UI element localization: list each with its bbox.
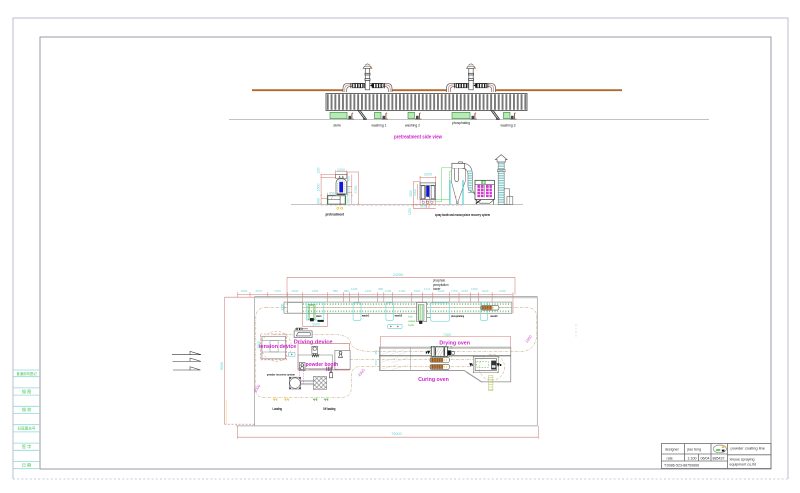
svg-text:06/04: 06/04 — [701, 456, 710, 460]
svg-text:wash2: wash2 — [394, 314, 403, 318]
svg-text:washing 1: washing 1 — [372, 123, 387, 127]
svg-text:200: 200 — [347, 198, 351, 204]
svg-text:skim: skim — [333, 123, 341, 127]
svg-text:1700: 1700 — [385, 289, 392, 293]
svg-text:3000: 3000 — [424, 173, 432, 177]
svg-text:980: 980 — [344, 289, 349, 293]
svg-text:2226: 2226 — [499, 289, 506, 293]
svg-text:2226: 2226 — [482, 289, 489, 293]
svg-text:描 图: 描 图 — [22, 388, 32, 395]
svg-text:1500: 1500 — [471, 287, 478, 291]
svg-text:pretreatment: pretreatment — [326, 212, 345, 216]
svg-text:equipment co,ltd: equipment co,ltd — [730, 462, 756, 466]
svg-text:1500: 1500 — [414, 289, 421, 293]
svg-text:200: 200 — [317, 168, 321, 174]
svg-text:phosphating: phosphating — [451, 314, 464, 318]
svg-text:powder recovery system: powder recovery system — [267, 372, 295, 376]
svg-text:tank: tank — [408, 323, 414, 327]
svg-text:3000: 3000 — [312, 322, 320, 326]
svg-text:1750: 1750 — [451, 289, 458, 293]
svg-text:xinyue spraying: xinyue spraying — [730, 458, 755, 462]
svg-text:powder booth: powder booth — [306, 362, 339, 368]
svg-text:skim: skim — [316, 314, 322, 318]
svg-text:描 校: 描 校 — [22, 406, 32, 413]
svg-text:1:100: 1:100 — [688, 456, 697, 460]
svg-text:1430: 1430 — [399, 289, 406, 293]
svg-text:wash1: wash1 — [361, 314, 370, 318]
svg-text:2570: 2570 — [255, 289, 262, 293]
svg-text:Curing oven: Curing oven — [418, 377, 449, 383]
svg-text:1445: 1445 — [351, 287, 358, 291]
svg-text:3500: 3500 — [257, 341, 261, 348]
svg-text:1500: 1500 — [241, 289, 248, 293]
svg-text:600: 600 — [420, 205, 426, 209]
svg-text:Drying oven: Drying oven — [439, 341, 470, 347]
svg-text:washing 3: washing 3 — [501, 123, 516, 127]
svg-text:普通用特登记: 普通用特登记 — [16, 371, 37, 376]
svg-text:Loading: Loading — [273, 407, 283, 411]
svg-text:5000: 5000 — [220, 362, 224, 370]
svg-text:800: 800 — [347, 176, 351, 182]
svg-text:rate: rate — [667, 456, 673, 460]
svg-text:880: 880 — [378, 287, 383, 291]
svg-text:1450: 1450 — [312, 289, 319, 293]
svg-text:tower: tower — [433, 287, 441, 291]
svg-text:1250: 1250 — [408, 208, 412, 215]
svg-text:wash3: wash3 — [490, 314, 498, 318]
svg-text:7300: 7300 — [443, 333, 451, 337]
svg-text:spray booth and monocyclone re: spray booth and monocyclone recovery sys… — [435, 213, 490, 217]
svg-text:1700: 1700 — [274, 289, 281, 293]
svg-text:1250: 1250 — [281, 303, 285, 310]
svg-text:pretreatment side view: pretreatment side view — [394, 134, 443, 140]
svg-text:1500: 1500 — [413, 189, 417, 196]
svg-text:Driving device: Driving device — [294, 339, 333, 345]
svg-text:75000: 75000 — [391, 432, 402, 436]
svg-text:1000: 1000 — [337, 168, 345, 172]
svg-text:650: 650 — [374, 349, 378, 354]
svg-text:600: 600 — [317, 198, 321, 204]
svg-text:designer: designer — [665, 447, 680, 451]
svg-text:880: 880 — [333, 289, 338, 293]
svg-text:tension device: tension device — [259, 344, 297, 350]
svg-text:1500: 1500 — [347, 186, 351, 193]
svg-text:1430: 1430 — [365, 289, 372, 293]
svg-text:24250: 24250 — [393, 273, 404, 277]
svg-text:650: 650 — [329, 191, 335, 195]
svg-text:2226: 2226 — [461, 289, 468, 293]
svg-text:签 字: 签 字 — [22, 443, 32, 449]
svg-text:washing 2: washing 2 — [405, 123, 420, 127]
svg-text:1500: 1500 — [317, 184, 321, 192]
svg-text:885437: 885437 — [713, 456, 725, 460]
svg-text:T:0086-523-88759666: T:0086-523-88759666 — [664, 463, 699, 467]
svg-text:1711: 1711 — [424, 287, 431, 291]
svg-text:phosphating: phosphating — [452, 121, 470, 125]
svg-text:jiao feng: jiao feng — [687, 447, 702, 451]
svg-text:650: 650 — [374, 360, 378, 365]
svg-text:Off loading: Off loading — [323, 407, 336, 411]
svg-text:750: 750 — [347, 192, 351, 198]
svg-text:3750: 3750 — [354, 186, 358, 194]
svg-text:3000: 3000 — [292, 289, 299, 293]
svg-text:旧底图总号: 旧底图总号 — [18, 426, 36, 431]
svg-text:powder coating line: powder coating line — [731, 445, 766, 450]
